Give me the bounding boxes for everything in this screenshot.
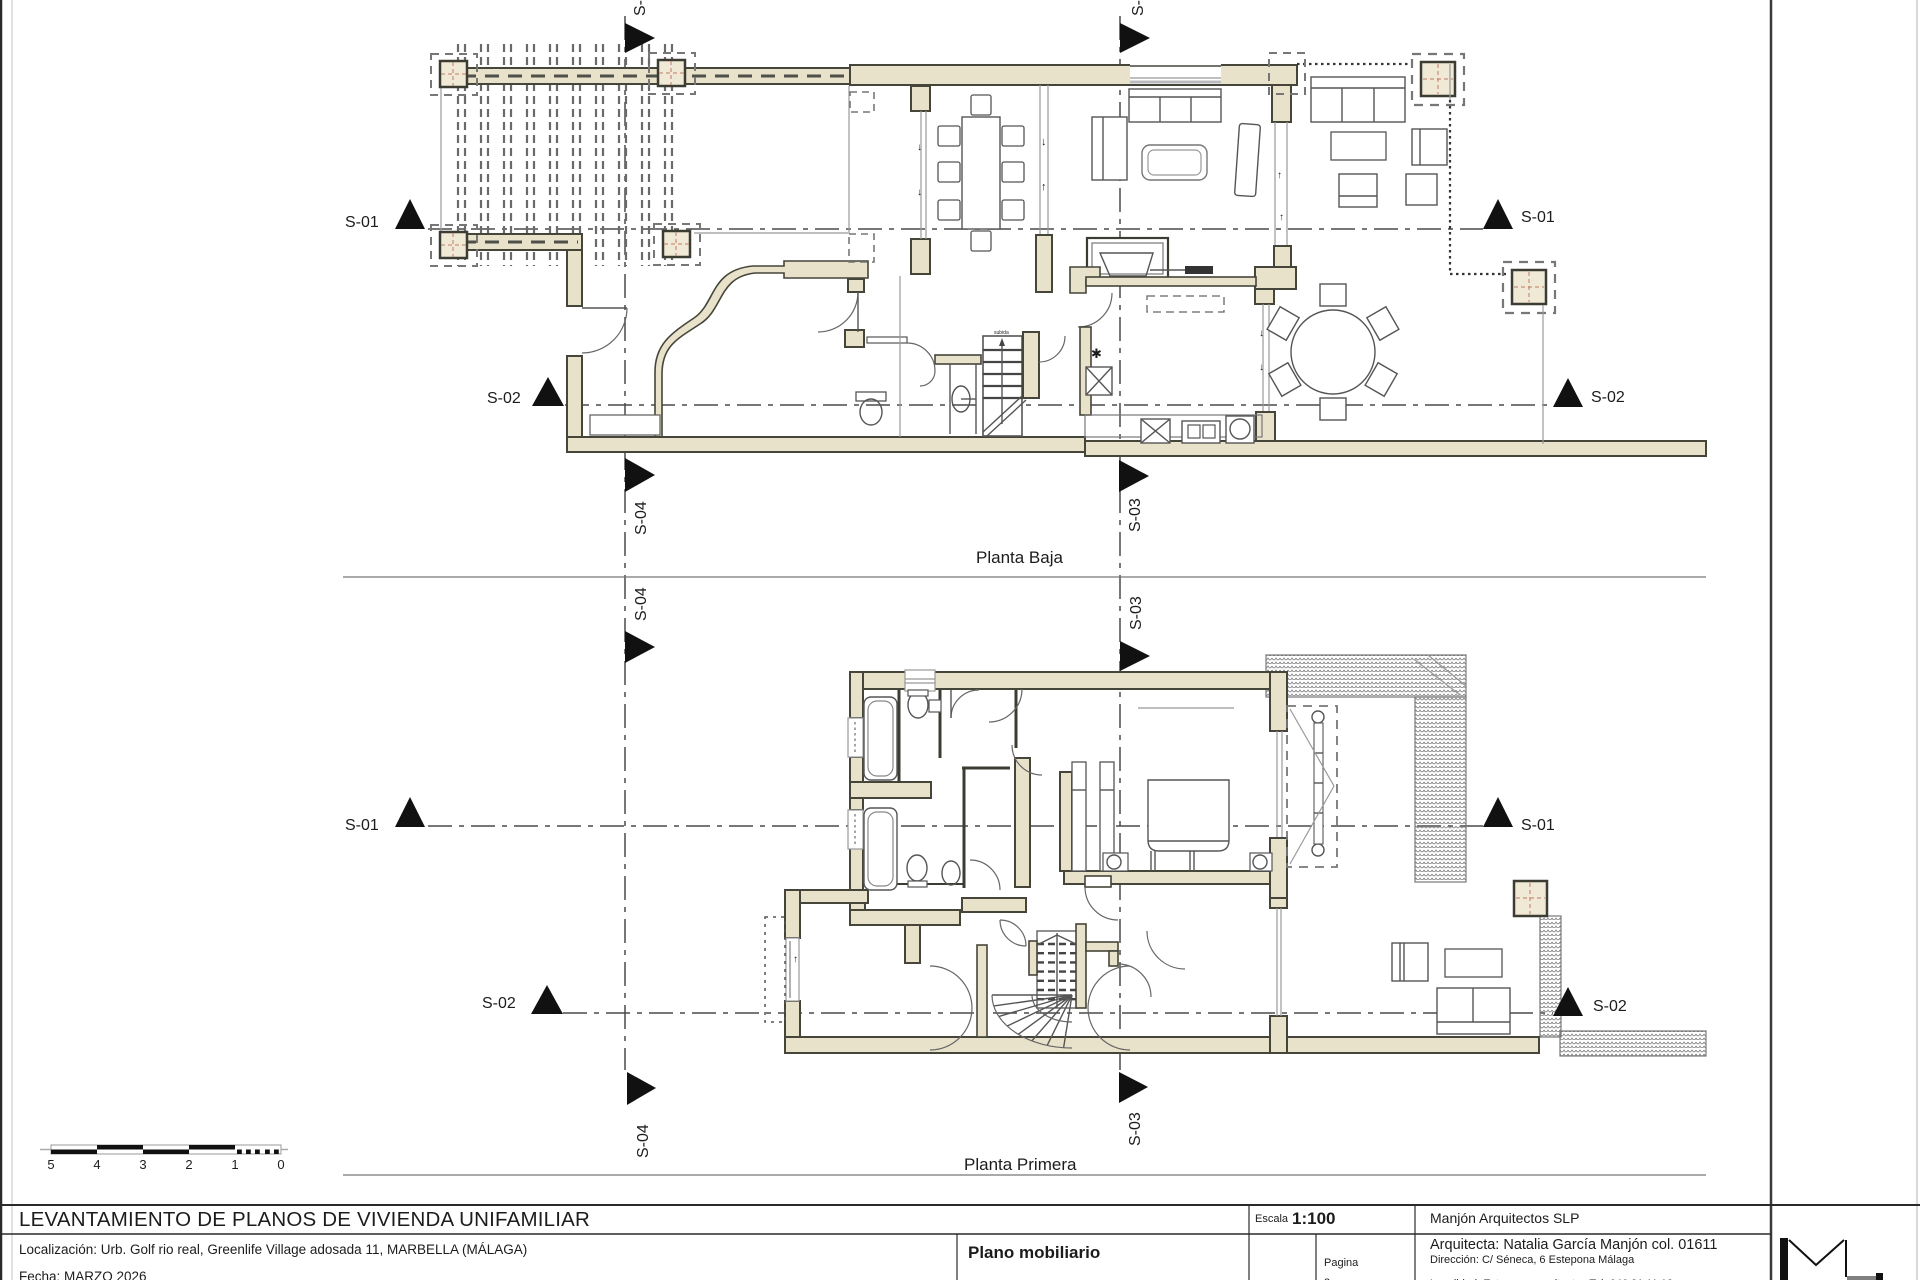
svg-text:3: 3 — [139, 1157, 146, 1172]
svg-text:↑: ↑ — [793, 954, 798, 965]
svg-text:Manjón Arquitectos SLP: Manjón Arquitectos SLP — [1430, 1210, 1579, 1226]
svg-text:S-01: S-01 — [1521, 209, 1555, 226]
svg-text:Planta Baja: Planta Baja — [976, 548, 1063, 567]
svg-text:S-01: S-01 — [345, 214, 379, 231]
svg-text:Pagina: Pagina — [1324, 1257, 1359, 1269]
svg-text:S-03: S-03 — [1128, 596, 1145, 630]
svg-text:S-03: S-03 — [1130, 0, 1147, 16]
svg-text:Plano mobiliario: Plano mobiliario — [968, 1243, 1100, 1262]
svg-text:LEVANTAMIENTO DE PLANOS DE VIV: LEVANTAMIENTO DE PLANOS DE VIVIENDA UNIF… — [19, 1208, 590, 1231]
svg-text:↓: ↓ — [1041, 136, 1047, 148]
svg-text:✱: ✱ — [1091, 346, 1102, 361]
svg-text:5: 5 — [47, 1157, 54, 1172]
svg-text:1:100: 1:100 — [1292, 1209, 1335, 1228]
svg-text:↑: ↑ — [1277, 170, 1282, 181]
svg-text:↓: ↓ — [917, 142, 922, 153]
svg-text:Escala: Escala — [1255, 1213, 1289, 1225]
svg-text:S-04: S-04 — [633, 587, 650, 621]
svg-text:S-02: S-02 — [1591, 389, 1625, 406]
svg-text:↓: ↓ — [1259, 328, 1264, 339]
svg-text:4: 4 — [93, 1157, 100, 1172]
svg-text:S-01: S-01 — [345, 817, 379, 834]
svg-text:S-02: S-02 — [487, 390, 521, 407]
svg-text:2: 2 — [185, 1157, 192, 1172]
svg-text:S-04: S-04 — [635, 1124, 652, 1158]
svg-text:Fecha: MARZO 2026: Fecha: MARZO 2026 — [19, 1269, 147, 1280]
svg-text:S-03: S-03 — [1127, 498, 1144, 532]
svg-text:↑: ↑ — [1041, 181, 1047, 193]
svg-text:S-04: S-04 — [632, 0, 649, 16]
svg-text:1: 1 — [231, 1157, 238, 1172]
svg-text:0: 0 — [277, 1157, 284, 1172]
svg-text:Localización: Urb. Golf rio r: Localización: Urb. Golf rio real, Greenl… — [19, 1242, 527, 1257]
svg-text:Planta Primera: Planta Primera — [964, 1155, 1077, 1174]
svg-text:S-01: S-01 — [1521, 817, 1555, 834]
svg-text:S-02: S-02 — [482, 995, 516, 1012]
svg-text:↑: ↑ — [1279, 212, 1284, 223]
svg-text:↓: ↓ — [917, 187, 922, 198]
svg-text:S-04: S-04 — [633, 501, 650, 535]
svg-text:Arquitecta: Natalia García Man: Arquitecta: Natalia García Manjón col. 0… — [1430, 1237, 1717, 1253]
svg-text:S-03: S-03 — [1127, 1112, 1144, 1146]
svg-text:Dirección: C/ Séneca, 6 Estepo: Dirección: C/ Séneca, 6 Estepona Málaga — [1430, 1254, 1635, 1266]
svg-text:↓: ↓ — [1259, 362, 1264, 373]
svg-text:subida: subida — [994, 330, 1009, 336]
svg-text:S-02: S-02 — [1593, 998, 1627, 1015]
